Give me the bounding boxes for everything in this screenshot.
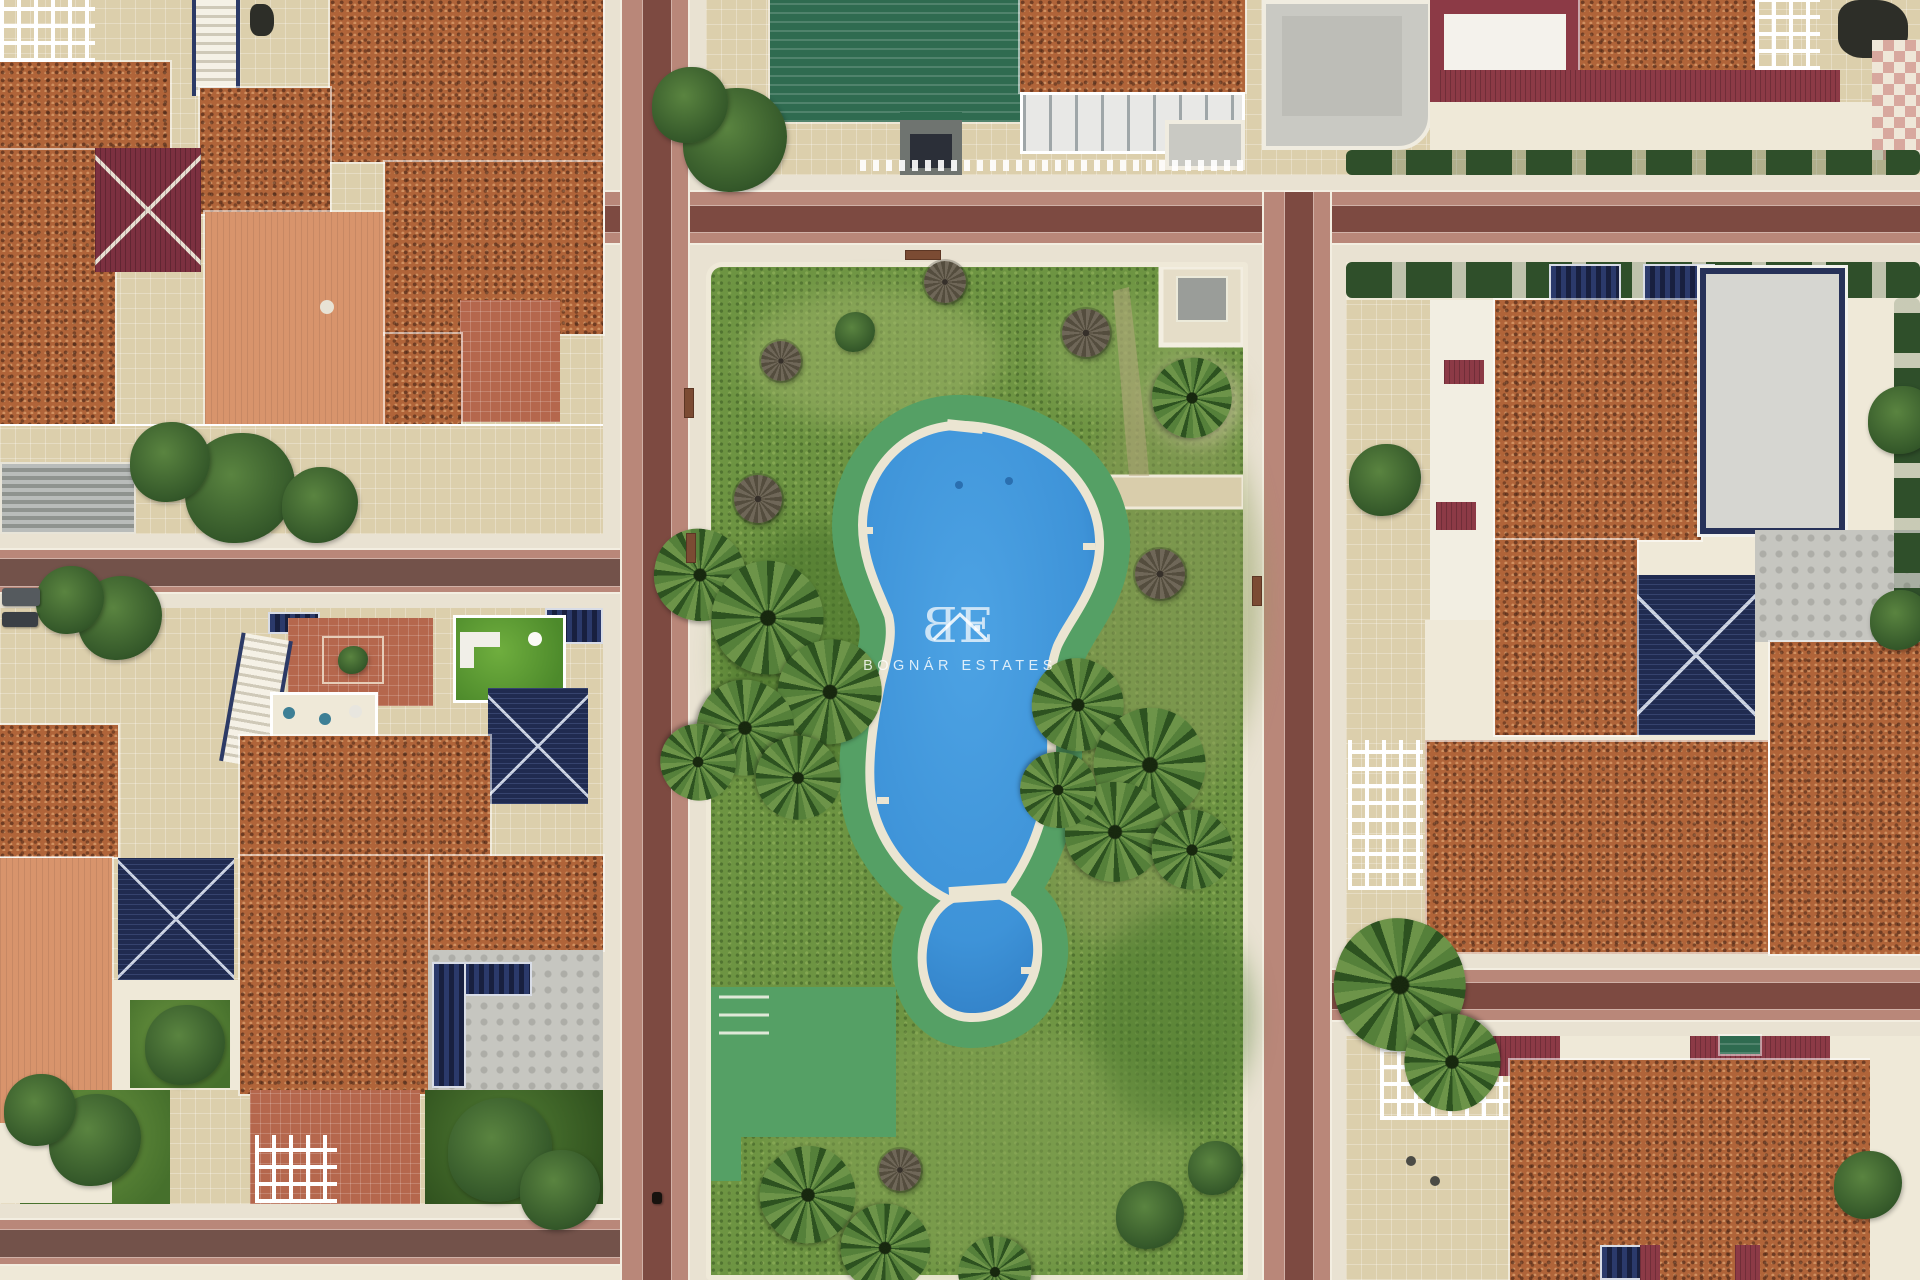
- roof-terracotta: [240, 856, 430, 1094]
- patio-chair: [319, 713, 331, 725]
- street-stripe: [0, 1230, 620, 1257]
- roof-maroon-bit: [1444, 360, 1484, 384]
- street-stripe: [643, 0, 671, 1280]
- hedge-row: [1894, 298, 1920, 628]
- roof-terracotta: [1495, 540, 1637, 735]
- roof-terracotta: [1495, 300, 1701, 540]
- terrace-brick: [460, 300, 560, 422]
- sidewalk: [690, 175, 1920, 190]
- aerial-photo: B E BOGNÁR ESTATES: [0, 0, 1920, 1280]
- roof-maroon-pyramid: [95, 148, 201, 272]
- bench: [905, 250, 941, 260]
- pool-deck-arm: [711, 987, 896, 1137]
- flat-roof-building: [1262, 0, 1432, 150]
- straw-umbrella: [734, 475, 782, 523]
- bench: [1252, 576, 1262, 606]
- roof-terracotta: [0, 62, 170, 152]
- bench: [684, 388, 694, 418]
- roof-maroon-bit: [1436, 502, 1476, 530]
- roof-terracotta: [1425, 740, 1770, 954]
- patio-checkered: [1872, 40, 1920, 160]
- bench: [686, 533, 696, 563]
- pergola: [1348, 740, 1423, 890]
- satellite-dish-icon: [320, 300, 334, 314]
- roof-terracotta: [1770, 642, 1920, 954]
- pool-ladder: [877, 797, 889, 804]
- parked-vehicle: [2, 612, 38, 627]
- parked-vehicle: [2, 588, 40, 606]
- block-top-left: [0, 0, 603, 534]
- roof-terracotta: [430, 856, 603, 950]
- roof-panel: [1282, 16, 1402, 116]
- straw-umbrella: [924, 261, 966, 303]
- straw-umbrella: [1062, 309, 1110, 357]
- green-shed: [1720, 1036, 1760, 1054]
- block-bottom-left-strip: [0, 1266, 620, 1280]
- block-top: [706, 0, 1920, 175]
- patio-table: [349, 705, 362, 718]
- roof-white-navy-edge: [1700, 268, 1845, 534]
- navy-awning-L: [432, 962, 466, 1088]
- roof-terracotta: [0, 725, 118, 857]
- patio-chair: [283, 707, 295, 719]
- pool-ladder: [1021, 967, 1033, 974]
- terrace-column: [1430, 300, 1496, 620]
- service-shed: [1177, 277, 1227, 321]
- walkway: [1430, 102, 1872, 150]
- sidewalk: [1332, 245, 1346, 1280]
- parked-vehicle: [652, 1192, 662, 1204]
- pool-ladder: [861, 527, 873, 534]
- roof-terracotta: [1020, 0, 1245, 92]
- staircase: [192, 0, 240, 96]
- street-left-bottom: [0, 1218, 620, 1266]
- street-stripe: [1285, 192, 1313, 1280]
- white-fence: [860, 160, 1250, 171]
- patio: [1346, 620, 1425, 954]
- pergola: [255, 1135, 337, 1203]
- roof-teal-green: [770, 0, 1020, 122]
- hedge-row: [1346, 150, 1920, 175]
- roof-navy-pyramid: [118, 858, 234, 980]
- roof-navy-pyramid: [1637, 575, 1755, 735]
- roof-terracotta: [330, 0, 603, 162]
- patio-furniture: [1430, 1176, 1440, 1186]
- roof-terracotta: [200, 88, 330, 214]
- patio-furniture: [1406, 1156, 1416, 1166]
- street-left-vertical: [620, 0, 690, 1280]
- storage-bin: [250, 4, 274, 36]
- pool-drain: [1005, 477, 1013, 485]
- roof-salmon: [205, 212, 387, 424]
- pool-deck-tab: [711, 1129, 741, 1181]
- block-right-upper: [1346, 262, 1920, 954]
- street-right-vertical: [1262, 192, 1332, 1280]
- sidewalk: [1248, 245, 1262, 1280]
- shed-roof: [0, 462, 136, 534]
- chimney: [1640, 1245, 1660, 1280]
- pergola: [0, 0, 95, 62]
- dirt-trail: [1113, 287, 1149, 476]
- pergola: [1755, 0, 1820, 70]
- roof-terracotta: [240, 736, 490, 856]
- roof-maroon-band: [1440, 70, 1840, 102]
- roof-navy-hip: [488, 688, 588, 804]
- lamp-globe: [528, 632, 542, 646]
- chimney: [1735, 1245, 1760, 1280]
- solar-panels: [1549, 264, 1621, 302]
- pool-drain: [955, 481, 963, 489]
- roof-terracotta: [1510, 1060, 1870, 1280]
- roof-terrace: [270, 692, 378, 740]
- tree: [1870, 590, 1920, 650]
- straw-umbrella: [879, 1149, 921, 1191]
- sidewalk: [0, 1204, 603, 1218]
- straw-umbrella: [1135, 549, 1185, 599]
- straw-umbrella: [761, 341, 801, 381]
- pool-ladder: [1083, 543, 1095, 550]
- garden-sofa: [460, 632, 474, 668]
- terrace-brick: [250, 1090, 420, 1204]
- roof-terracotta: [1580, 0, 1755, 78]
